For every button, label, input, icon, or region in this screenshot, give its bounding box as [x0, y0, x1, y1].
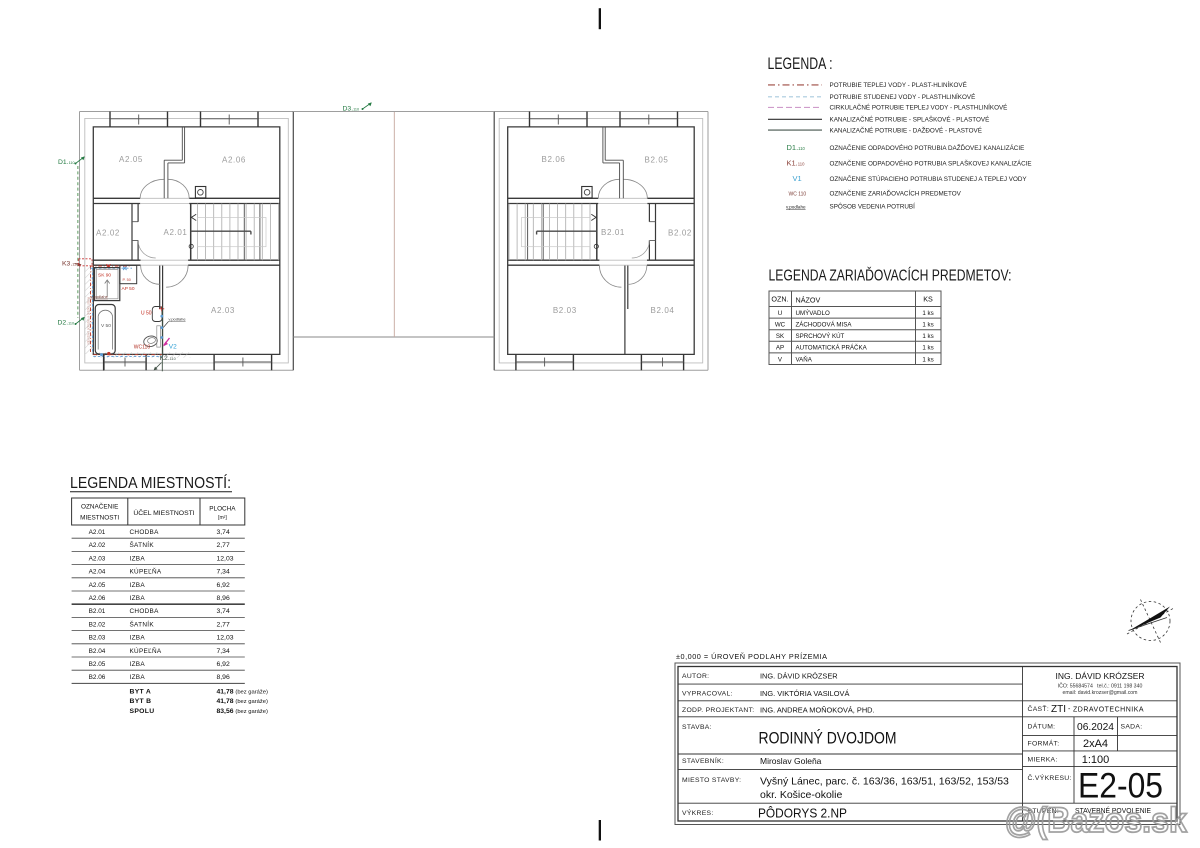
svg-text:IZBA: IZBA	[130, 635, 146, 642]
svg-text:B2.01: B2.01	[89, 608, 106, 615]
svg-text:NÁZOV: NÁZOV	[796, 296, 821, 305]
svg-text:IZBA: IZBA	[130, 595, 146, 602]
svg-text:Miroslav Goleňa: Miroslav Goleňa	[760, 756, 822, 766]
svg-text:[m²]: [m²]	[218, 515, 227, 521]
svg-text:1 ks: 1 ks	[922, 345, 933, 352]
svg-text:BYT B: BYT B	[130, 698, 152, 705]
svg-text:7,34: 7,34	[217, 569, 230, 576]
svg-text:A2.01: A2.01	[164, 228, 188, 237]
svg-text:KÚPEĽŇA: KÚPEĽŇA	[130, 567, 162, 576]
svg-text:12,03: 12,03	[217, 635, 234, 642]
svg-text:KS: KS	[923, 295, 933, 304]
svg-text:A2.05: A2.05	[89, 582, 106, 589]
svg-text:POTRUBIE STUDENEJ VODY - PLAST: POTRUBIE STUDENEJ VODY - PLASTHLINÍKOVÉ	[830, 92, 976, 101]
svg-text:VYPRACOVAL:: VYPRACOVAL:	[682, 691, 733, 698]
svg-text:A2.02: A2.02	[89, 542, 106, 549]
svg-text:A2.03: A2.03	[89, 555, 106, 562]
svg-text:B2.02: B2.02	[89, 621, 106, 628]
svg-text:ZODP. PROJEKTANT:: ZODP. PROJEKTANT:	[682, 707, 754, 714]
svg-text:ING. VIKTÓRIA VASILOVÁ: ING. VIKTÓRIA VASILOVÁ	[760, 689, 849, 698]
svg-text:SK 90: SK 90	[98, 273, 111, 279]
svg-text:U: U	[778, 310, 782, 317]
svg-text:MIESTO STAVBY:: MIESTO STAVBY:	[682, 777, 741, 784]
svg-text:okr. Košice-okolie: okr. Košice-okolie	[760, 789, 842, 801]
svg-text:B2.03: B2.03	[553, 306, 577, 315]
svg-text:KANALIZAČNÉ POTRUBIE - SPLAŠKO: KANALIZAČNÉ POTRUBIE - SPLAŠKOVÉ - PLAST…	[830, 115, 990, 124]
svg-text:ING. DÁVID KRÓZSER: ING. DÁVID KRÓZSER	[1056, 671, 1145, 681]
svg-text:8,96: 8,96	[217, 595, 230, 602]
svg-text:LEGENDA ZARIAĎOVACÍCH PREDMETO: LEGENDA ZARIAĎOVACÍCH PREDMETOV:	[769, 268, 1012, 285]
svg-text:83,56 (bez garáže): 83,56 (bez garáže)	[217, 708, 269, 715]
svg-text:MIESTNOSTI: MIESTNOSTI	[80, 515, 119, 522]
svg-text:ZDRAVOTECHNIKA: ZDRAVOTECHNIKA	[1073, 707, 1144, 714]
svg-text:A2.02: A2.02	[96, 229, 120, 238]
svg-text:VAŇA: VAŇA	[796, 356, 813, 363]
svg-text:V1: V1	[793, 174, 802, 183]
svg-text:2xA4: 2xA4	[1083, 738, 1108, 750]
svg-text:±0,000 = ÚROVEŇ PODLAHY PRÍZEM: ±0,000 = ÚROVEŇ PODLAHY PRÍZEMIA	[676, 652, 827, 661]
svg-text:SK: SK	[776, 333, 785, 340]
svg-text:v.podlahe: v.podlahe	[786, 205, 806, 210]
svg-text:SPRCHOVÝ KÚT: SPRCHOVÝ KÚT	[796, 333, 845, 340]
svg-text:V 50: V 50	[101, 323, 111, 329]
svg-text:IZBA: IZBA	[130, 555, 146, 562]
svg-text:D1.110: D1.110	[58, 159, 75, 166]
svg-text:AP: AP	[776, 345, 784, 352]
svg-text:U 50: U 50	[141, 311, 152, 317]
svg-text:OZNAČENIE: OZNAČENIE	[81, 502, 118, 511]
svg-text:B2.06: B2.06	[542, 155, 566, 164]
svg-text:OZNAČENIE ODPADOVÉHO POTRUBIA: OZNAČENIE ODPADOVÉHO POTRUBIA DAŽĎOVEJ K…	[830, 143, 1025, 152]
svg-text:AUTOR:: AUTOR:	[682, 673, 709, 680]
svg-text:8,96: 8,96	[217, 674, 230, 681]
svg-text:STAVBA:: STAVBA:	[682, 724, 712, 731]
svg-text:A2.03: A2.03	[211, 306, 235, 315]
svg-text:SPÔSOB VEDENIA POTRUBÍ: SPÔSOB VEDENIA POTRUBÍ	[830, 202, 916, 211]
svg-text:ČASŤ:: ČASŤ:	[1028, 704, 1050, 713]
svg-text:1 ks: 1 ks	[922, 356, 933, 363]
svg-text:MIERKA:: MIERKA:	[1028, 757, 1058, 764]
svg-text:B2.04: B2.04	[651, 306, 675, 315]
svg-text:6,92: 6,92	[217, 661, 230, 668]
svg-text:A2.05: A2.05	[119, 155, 143, 164]
svg-text:ZTI: ZTI	[1051, 704, 1066, 715]
svg-text:B2.05: B2.05	[89, 661, 106, 668]
svg-text:POTRUBIE TEPLEJ VODY - PLAST-H: POTRUBIE TEPLEJ VODY - PLAST-HLINÍKOVÉ	[830, 80, 967, 89]
svg-text:B2.06: B2.06	[89, 674, 106, 681]
svg-text:ŠATNÍK: ŠATNÍK	[130, 540, 155, 549]
svg-text:DÁTUM:: DÁTUM:	[1028, 722, 1056, 731]
svg-text:P. 50: P. 50	[123, 278, 131, 282]
svg-text:IZBA: IZBA	[130, 661, 146, 668]
svg-text:IČO: 55684574 tel.č.: 0911 1: IČO: 55684574 tel.č.: 0911 198 340	[1058, 683, 1143, 690]
svg-text:7,34: 7,34	[217, 648, 230, 655]
svg-text:OZNAČENIE STÚPACIEHO POTRUBIA: OZNAČENIE STÚPACIEHO POTRUBIA STUDENEJ A…	[830, 174, 1028, 183]
svg-text:41,78 (bez garáže): 41,78 (bez garáže)	[217, 689, 269, 696]
svg-text:email: david.krozser@gmail.com: email: david.krozser@gmail.com	[1062, 690, 1137, 696]
svg-text:UMÝVADLO: UMÝVADLO	[796, 310, 830, 317]
svg-text:12,03: 12,03	[217, 555, 234, 562]
svg-text:6,92: 6,92	[217, 582, 230, 589]
svg-text:B2.05: B2.05	[645, 156, 669, 165]
svg-text:1 ks: 1 ks	[922, 333, 933, 340]
svg-text:CHODBA: CHODBA	[130, 608, 160, 615]
svg-text:CIRKULAČNÉ POTRUBIE TEPLEJ VOD: CIRKULAČNÉ POTRUBIE TEPLEJ VODY - PLASTH…	[830, 103, 1008, 112]
svg-text:FORMÁT:: FORMÁT:	[1028, 739, 1060, 748]
svg-text:v.podlahe: v.podlahe	[91, 294, 109, 299]
svg-text:STAVEBNÍK:: STAVEBNÍK:	[682, 756, 724, 765]
svg-text:A2.06: A2.06	[89, 595, 106, 602]
svg-text:SADA:: SADA:	[1121, 724, 1143, 731]
svg-text:BYT A: BYT A	[130, 689, 152, 696]
svg-text:VÝKRES:: VÝKRES:	[682, 808, 714, 817]
svg-text:E2-05: E2-05	[1078, 767, 1163, 806]
svg-text:AP 50: AP 50	[122, 286, 135, 292]
svg-text:A2.04: A2.04	[89, 569, 106, 576]
svg-text:ŠATNÍK: ŠATNÍK	[130, 619, 155, 628]
svg-text:B2.04: B2.04	[89, 648, 106, 655]
svg-text:A2.01: A2.01	[89, 529, 106, 536]
svg-text:3,74: 3,74	[217, 529, 230, 536]
svg-text:41,78 (bez garáže): 41,78 (bez garáže)	[217, 698, 269, 705]
svg-text:OZNAČENIE ODPADOVÉHO POTRUBIA: OZNAČENIE ODPADOVÉHO POTRUBIA SPLAŠKOVEJ…	[830, 159, 1032, 168]
svg-text:RODINNÝ DVOJDOM: RODINNÝ DVOJDOM	[759, 729, 897, 748]
svg-text:ÚČEL MIESTNOSTI: ÚČEL MIESTNOSTI	[133, 508, 194, 517]
svg-text:@(Bazos.sk: @(Bazos.sk	[1005, 801, 1187, 840]
svg-text:KANALIZAČNÉ POTRUBIE - DAŽĐOVÉ: KANALIZAČNÉ POTRUBIE - DAŽĐOVÉ - PLASTOV…	[830, 125, 982, 134]
svg-text:D3.110: D3.110	[343, 106, 360, 113]
svg-text:OZN.: OZN.	[771, 295, 788, 304]
svg-text:CHODBA: CHODBA	[130, 529, 160, 536]
svg-text:06.2024: 06.2024	[1077, 721, 1114, 733]
svg-text:K2.110: K2.110	[160, 355, 176, 362]
svg-text:ING. ANDREA MOŇOKOVÁ, PHD.: ING. ANDREA MOŇOKOVÁ, PHD.	[760, 706, 875, 715]
svg-text:3,74: 3,74	[217, 608, 230, 615]
svg-text:PLOCHA: PLOCHA	[209, 506, 236, 513]
svg-text:WC: WC	[775, 322, 786, 329]
svg-text:1:100: 1:100	[1082, 754, 1110, 766]
svg-text:IZBA: IZBA	[130, 582, 146, 589]
svg-text:1 ks: 1 ks	[922, 310, 933, 317]
svg-text:v.podlahe: v.podlahe	[169, 316, 187, 321]
svg-text:Č.VÝKRESU:: Č.VÝKRESU:	[1028, 773, 1072, 782]
svg-text:ZÁCHODOVÁ MISA: ZÁCHODOVÁ MISA	[796, 322, 853, 329]
svg-text:1 ks: 1 ks	[922, 322, 933, 329]
svg-text:OZNAČENIE ZARIAĎOVACÍCH PREDME: OZNAČENIE ZARIAĎOVACÍCH PREDMETOV	[830, 189, 962, 198]
svg-text:V2: V2	[169, 344, 177, 351]
svg-text:B2.02: B2.02	[668, 229, 692, 238]
svg-text:2,77: 2,77	[217, 621, 230, 628]
svg-text:2,77: 2,77	[217, 542, 230, 549]
svg-text:Vyšný Lánec, parc. č. 163/36,: Vyšný Lánec, parc. č. 163/36, 163/51, 16…	[760, 776, 1009, 788]
svg-text:LEGENDA :: LEGENDA :	[768, 55, 833, 73]
svg-text:SPOLU: SPOLU	[130, 708, 155, 715]
svg-text:WC 110: WC 110	[789, 192, 807, 198]
svg-text:ING. DÁVID KRÓZSER: ING. DÁVID KRÓZSER	[760, 672, 838, 681]
svg-text:B2.03: B2.03	[89, 635, 106, 642]
svg-text:AUTOMATICKÁ PRÁČKA: AUTOMATICKÁ PRÁČKA	[796, 345, 868, 352]
svg-text:A2.06: A2.06	[222, 156, 246, 165]
svg-text:KÚPEĽŇA: KÚPEĽŇA	[130, 646, 162, 655]
svg-text:WC110: WC110	[134, 345, 151, 351]
svg-text:LEGENDA MIESTNOSTÍ:: LEGENDA MIESTNOSTÍ:	[70, 473, 231, 492]
svg-text:B2.01: B2.01	[601, 228, 625, 237]
svg-text:PÔDORYS 2.NP: PÔDORYS 2.NP	[758, 806, 847, 821]
svg-text:D2.110: D2.110	[58, 320, 75, 327]
svg-text:IZBA: IZBA	[130, 674, 146, 681]
